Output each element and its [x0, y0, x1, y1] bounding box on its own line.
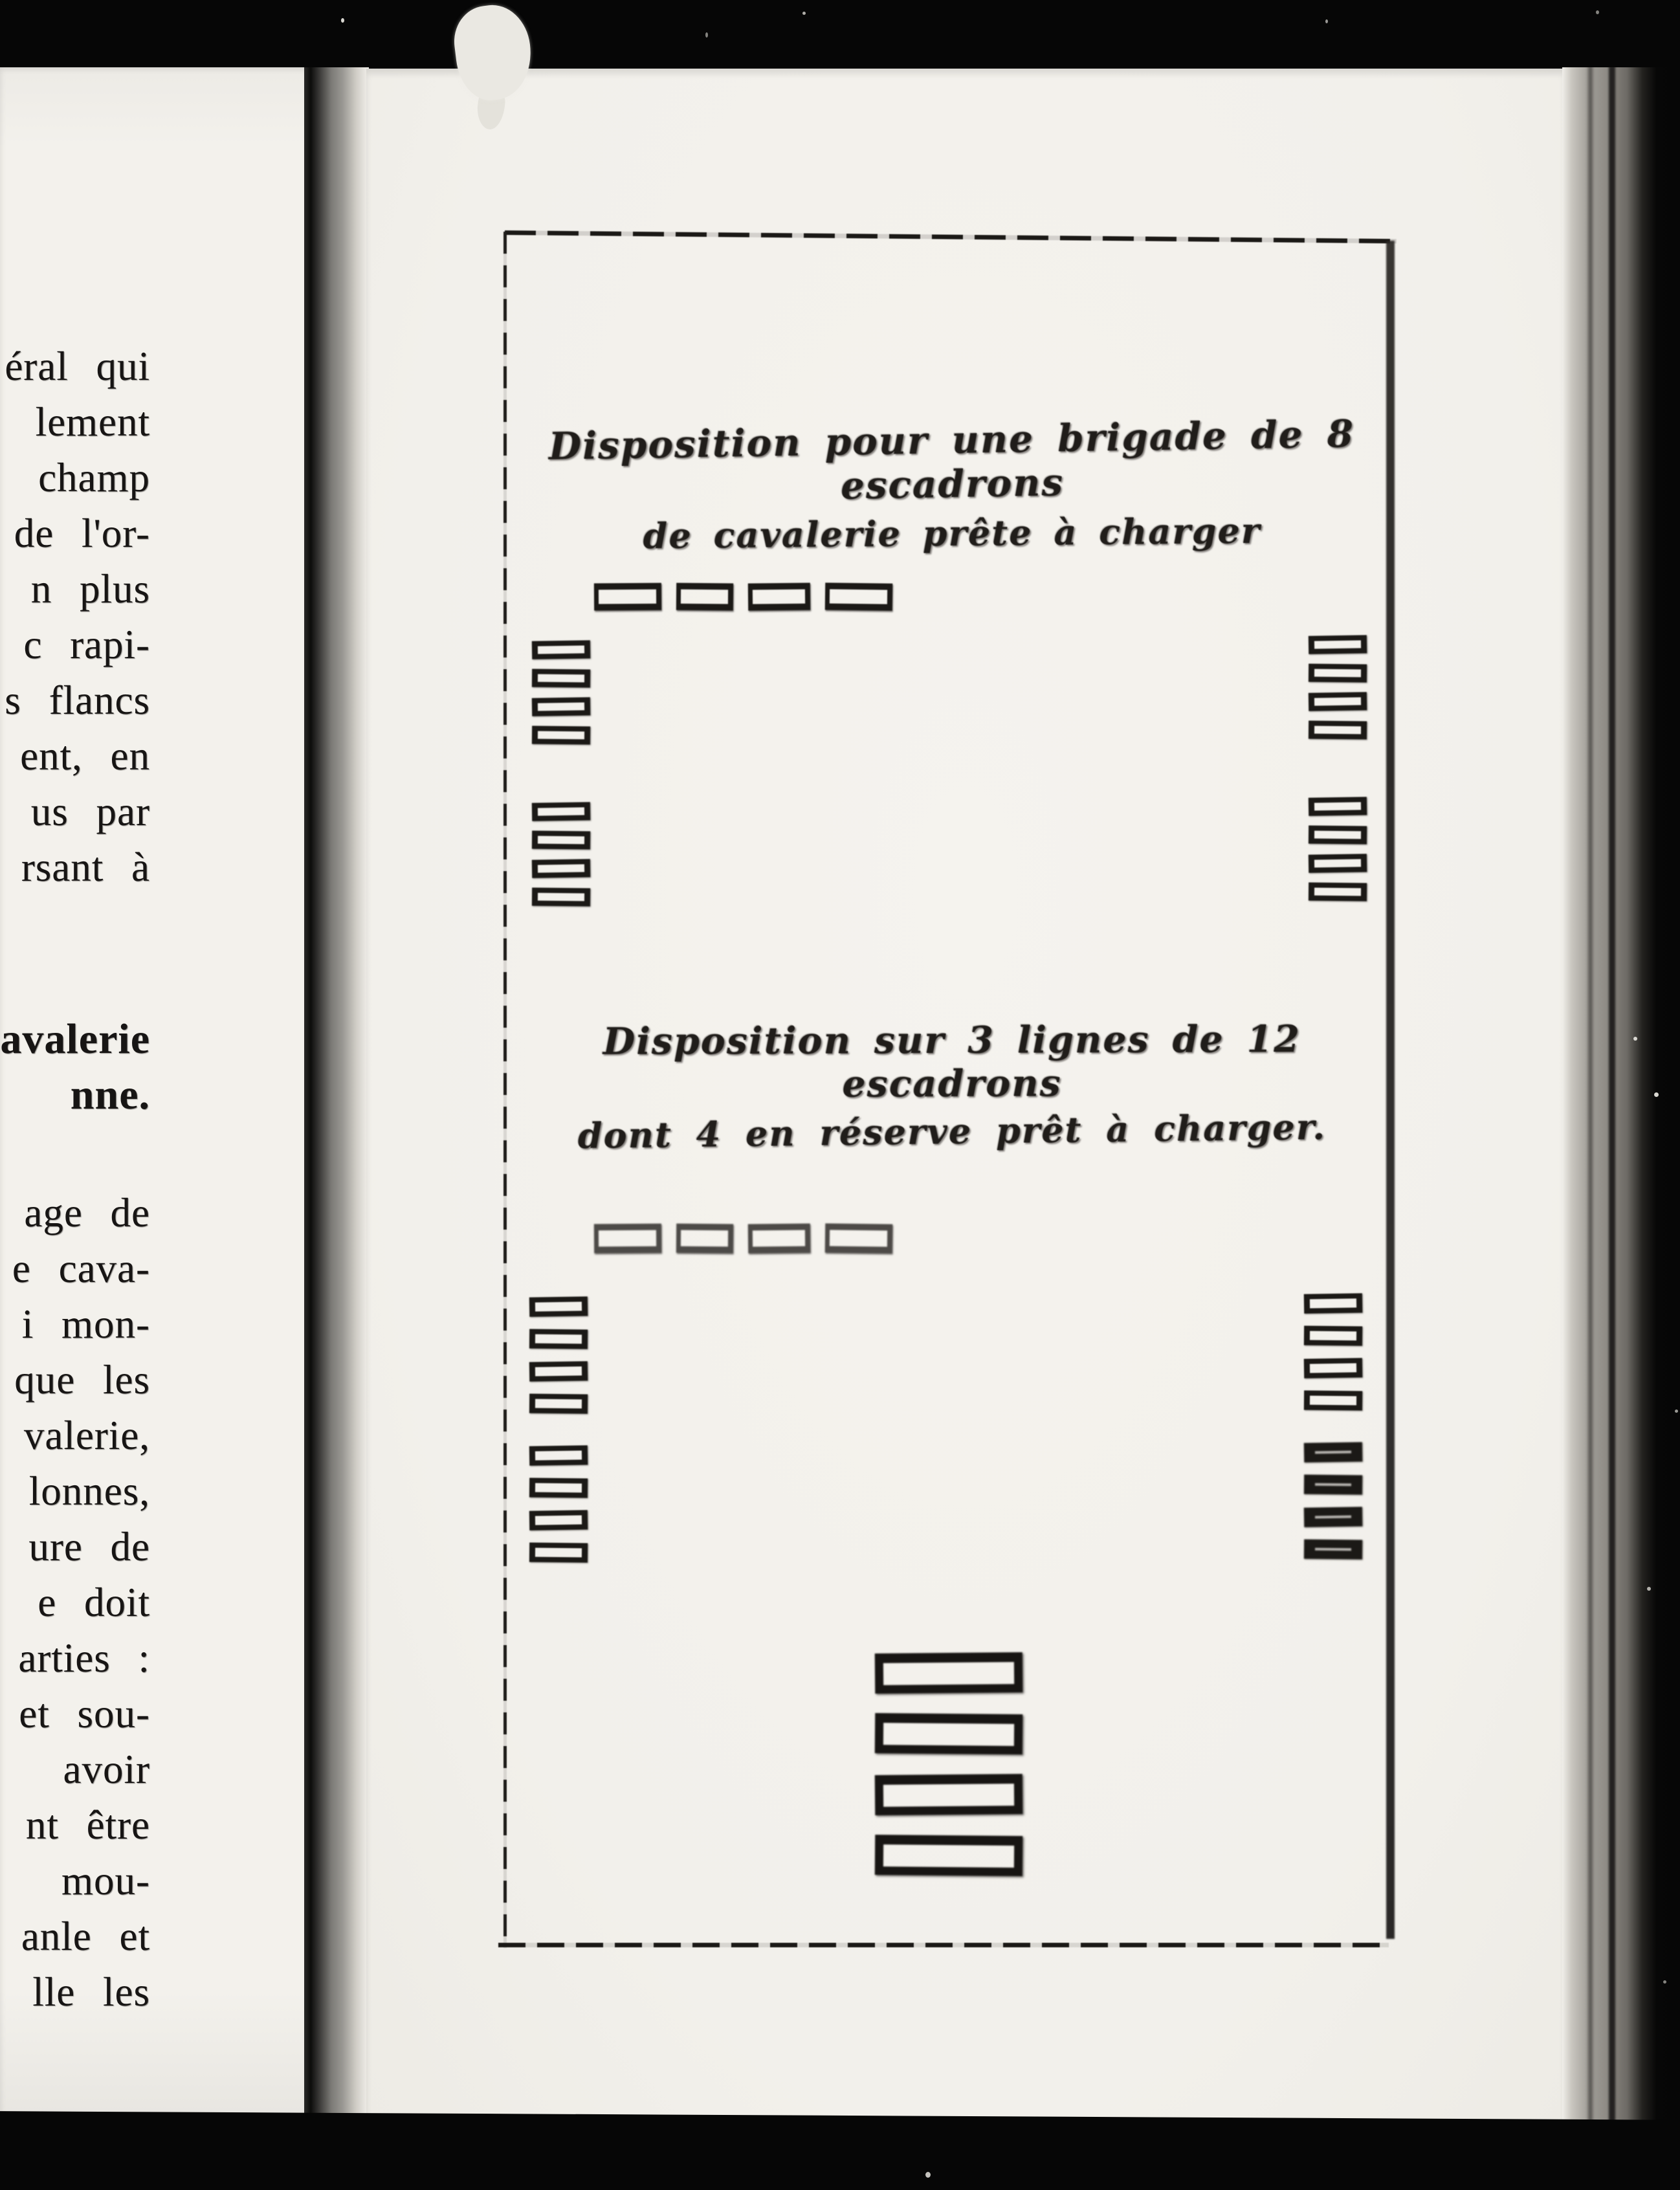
figure1-right-column-group-1	[1309, 636, 1367, 739]
squadron-symbol	[529, 1329, 588, 1349]
figure1-title-line2: de cavalerie prête à charger	[502, 509, 1402, 558]
squadron-symbol	[529, 1445, 588, 1465]
dust-speck	[1325, 19, 1328, 23]
text-line: n plus	[0, 561, 150, 617]
squadron-symbol	[1309, 692, 1367, 711]
squadron-symbol	[1309, 854, 1367, 872]
squadron-symbol	[532, 697, 590, 716]
diagram-frame-top	[505, 230, 1397, 243]
text-line: ure de	[0, 1519, 150, 1575]
text-line: valerie,	[0, 1408, 150, 1463]
dust-speck	[802, 12, 806, 15]
text-line: arties :	[0, 1630, 150, 1686]
squadron-symbol	[1304, 1391, 1362, 1411]
text-line: e doit	[0, 1575, 150, 1630]
squadron-symbol	[825, 582, 893, 610]
squadron-symbol	[1304, 1442, 1362, 1462]
figure2-title-line1: Disposition sur 3 lignes de 12 escadrons	[502, 1017, 1402, 1107]
squadron-symbol	[1304, 1475, 1362, 1495]
figure1-title-line1: Disposition pour une brigade de 8 escadr…	[502, 411, 1402, 513]
dust-speck	[1675, 1410, 1678, 1413]
squadron-symbol	[1304, 1358, 1362, 1378]
squadron-symbol	[748, 1223, 810, 1253]
figure1-right-column-group-2	[1309, 797, 1367, 901]
squadron-symbol	[1309, 721, 1367, 740]
squadron-symbol	[529, 1361, 588, 1381]
squadron-symbol	[529, 1510, 588, 1530]
text-line: lle les	[0, 1964, 150, 2020]
scan-background-top	[0, 0, 1680, 67]
squadron-symbol	[1304, 1293, 1362, 1313]
squadron-symbol	[529, 1296, 588, 1316]
squadron-symbol	[532, 669, 590, 688]
squadron-symbol	[532, 859, 590, 878]
text-line: mou-	[0, 1853, 150, 1908]
text-line: anle et	[0, 1908, 150, 1964]
dust-speck	[705, 32, 708, 38]
text-line: que les	[0, 1352, 150, 1408]
figure2-front-line	[594, 1224, 892, 1253]
squadron-symbol	[529, 1543, 588, 1563]
figure2-reserve-column	[875, 1653, 1022, 1875]
figure2-title-line2: dont 4 en réserve prêt à charger.	[502, 1105, 1402, 1158]
squadron-symbol	[1304, 1507, 1362, 1527]
text-line: avoir	[0, 1742, 150, 1797]
text-line: de l'or-	[0, 505, 150, 561]
text-line: age de	[0, 1185, 150, 1241]
page-edge-line	[1588, 66, 1593, 2141]
book-scan: éral quilementchampde l'or-n plusc rapi-…	[0, 0, 1680, 2190]
squadron-symbol	[1309, 635, 1367, 654]
figure2-right-column-group-1	[1304, 1294, 1362, 1410]
figure2-left-column-group-1	[529, 1297, 588, 1413]
squadron-symbol	[825, 1223, 893, 1253]
squadron-symbol	[1304, 1326, 1362, 1346]
text-line: champ	[0, 450, 150, 505]
dust-speck	[1663, 1980, 1666, 1984]
text-line: i mon-	[0, 1296, 150, 1352]
squadron-symbol	[676, 1224, 733, 1254]
text-line: lonnes,	[0, 1463, 150, 1519]
squadron-symbol	[594, 1224, 661, 1254]
dust-speck	[341, 18, 344, 23]
figure1-title: Disposition pour une brigade de 8 escadr…	[502, 418, 1402, 554]
squadron-symbol	[1309, 664, 1367, 683]
squadron-symbol	[676, 583, 733, 611]
text-line: cavalerie	[0, 1012, 150, 1067]
text-line: c rapi-	[0, 617, 150, 672]
text-line: lement	[0, 394, 150, 450]
reserve-squadron-symbol	[875, 1835, 1023, 1876]
dust-speck	[1647, 1587, 1651, 1591]
text-line: rsant à	[0, 839, 150, 895]
right-page: Disposition pour une brigade de 8 escadr…	[366, 69, 1565, 2127]
squadron-symbol	[1309, 883, 1367, 901]
text-line: ent, en	[0, 728, 150, 784]
dust-speck	[1633, 1037, 1637, 1041]
dust-speck	[1596, 10, 1599, 14]
squadron-symbol	[748, 582, 810, 610]
left-page: éral quilementchampde l'or-n plusc rapi-…	[0, 63, 309, 2115]
squadron-symbol	[532, 726, 590, 745]
page-edge-line	[1609, 66, 1615, 2141]
figure2-left-column-group-2	[529, 1446, 588, 1562]
scan-background-bottom	[0, 2111, 1680, 2190]
figure1-left-column-group-2	[532, 802, 590, 906]
figure2-title: Disposition sur 3 lignes de 12 escadrons…	[502, 1019, 1402, 1152]
text-line: et sou-	[0, 1686, 150, 1742]
squadron-symbol	[1309, 797, 1367, 815]
text-line: s flancs	[0, 672, 150, 728]
book-gutter-shadow	[304, 63, 369, 2116]
left-page-text-column: éral quilementchampde l'or-n plusc rapi-…	[0, 338, 150, 2020]
squadron-symbol	[529, 1394, 588, 1414]
reserve-squadron-symbol	[875, 1652, 1023, 1694]
reserve-squadron-symbol	[875, 1713, 1023, 1754]
text-line: éral qui	[0, 338, 150, 394]
dust-speck	[1654, 1092, 1659, 1097]
squadron-symbol	[1304, 1540, 1362, 1560]
squadron-symbol	[594, 583, 661, 611]
text-line: us par	[0, 784, 150, 839]
text-line: e cava-	[0, 1241, 150, 1296]
page-stack-edge	[1562, 66, 1680, 2141]
squadron-symbol	[529, 1478, 588, 1498]
squadron-symbol	[532, 802, 590, 821]
reserve-squadron-symbol	[875, 1774, 1023, 1815]
figure2-right-column-group-2	[1304, 1443, 1362, 1559]
figure1-left-column-group-1	[532, 641, 590, 744]
squadron-symbol	[532, 831, 590, 850]
figure1-front-line	[594, 583, 892, 610]
diagram-frame-bottom	[498, 1943, 1389, 1947]
squadron-symbol	[1309, 826, 1367, 845]
dust-speck	[925, 2172, 931, 2178]
squadron-symbol	[532, 640, 590, 659]
text-line: nt être	[0, 1797, 150, 1853]
squadron-symbol	[532, 888, 590, 907]
text-line: nne.	[0, 1067, 150, 1123]
